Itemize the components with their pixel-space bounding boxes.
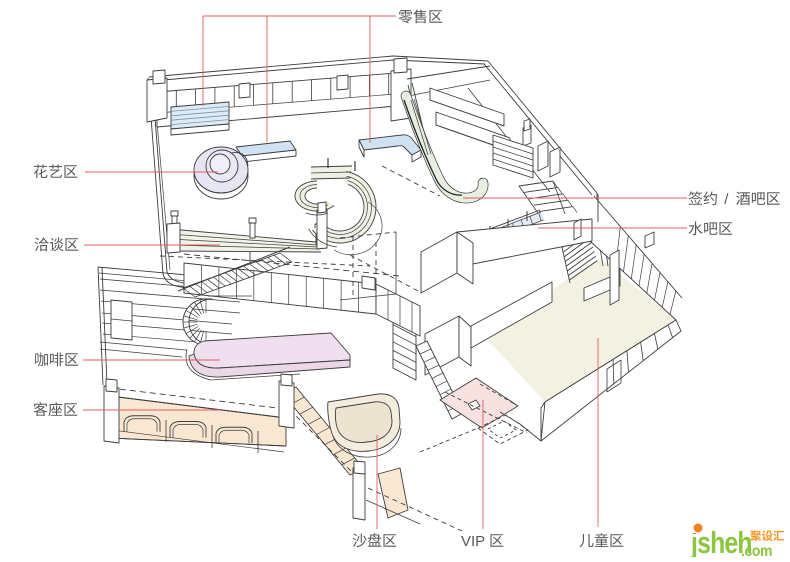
svg-text:VIP: VIP xyxy=(461,533,485,550)
svg-text:.com: .com xyxy=(741,542,772,557)
